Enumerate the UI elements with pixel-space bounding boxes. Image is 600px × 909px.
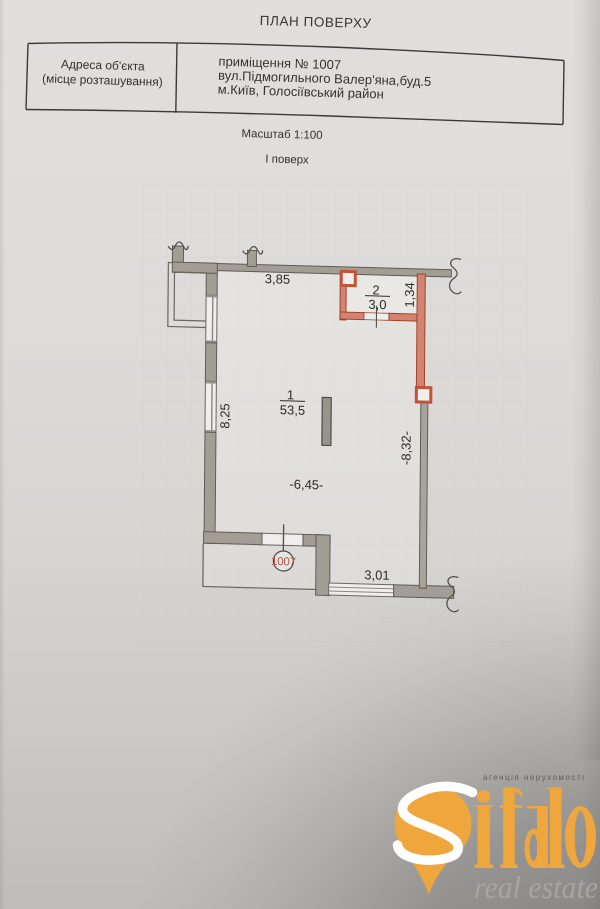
svg-text:1,34: 1,34	[402, 282, 417, 308]
svg-text:3,01: 3,01	[364, 567, 389, 583]
svg-text:1007: 1007	[271, 556, 295, 569]
svg-text:8,25: 8,25	[217, 403, 232, 429]
svg-text:-6,45-: -6,45-	[289, 477, 323, 493]
svg-text:53,5: 53,5	[280, 402, 305, 418]
svg-text:-8,32-: -8,32-	[398, 431, 413, 465]
svg-text:1: 1	[287, 387, 294, 402]
svg-text:3,0: 3,0	[368, 297, 386, 312]
svg-text:real estate: real estate	[474, 869, 598, 905]
svg-text:3,85: 3,85	[265, 271, 290, 287]
svg-text:2: 2	[372, 282, 379, 297]
svg-text:агенція нерухомості: агенція нерухомості	[483, 773, 585, 782]
